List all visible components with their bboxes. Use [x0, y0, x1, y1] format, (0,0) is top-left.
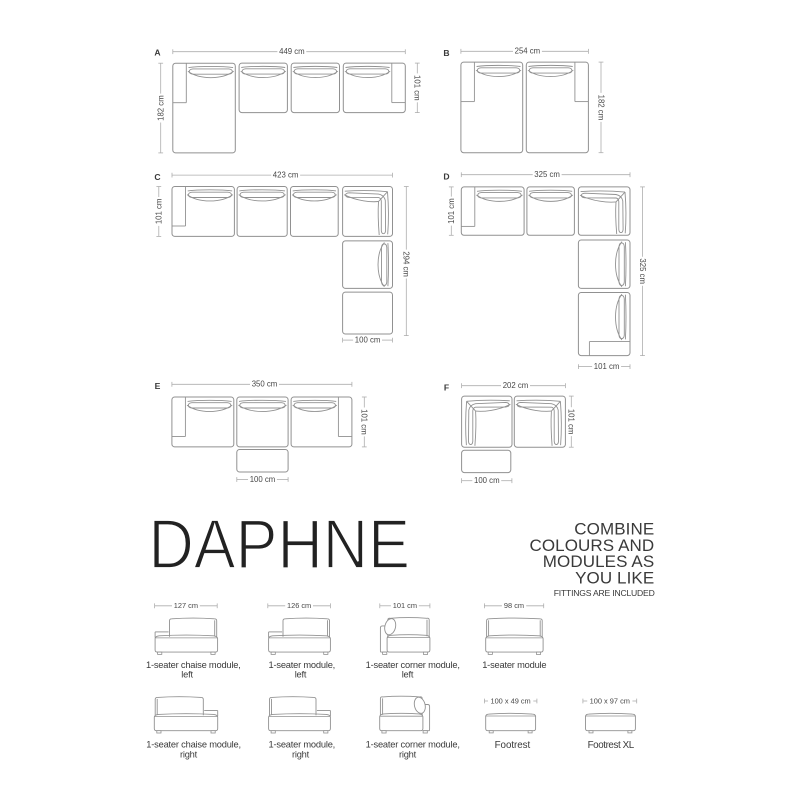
svg-text:101 cm: 101 cm — [393, 601, 417, 610]
svg-text:B: B — [443, 48, 449, 58]
svg-text:right: right — [292, 749, 310, 759]
svg-text:100 cm: 100 cm — [474, 476, 500, 485]
svg-text:1-seater corner module,: 1-seater corner module, — [366, 660, 460, 670]
svg-text:1-seater chaise module,: 1-seater chaise module, — [146, 660, 241, 670]
svg-text:100 cm: 100 cm — [250, 475, 276, 484]
svg-text:C: C — [154, 172, 160, 182]
svg-text:FITTINGS ARE INCLUDED: FITTINGS ARE INCLUDED — [554, 588, 655, 598]
svg-text:YOU LIKE: YOU LIKE — [575, 569, 654, 588]
svg-text:100 x 97 cm: 100 x 97 cm — [590, 696, 630, 705]
svg-text:100 x 49 cm: 100 x 49 cm — [490, 696, 530, 705]
svg-text:Footrest XL: Footrest XL — [588, 740, 635, 751]
svg-text:202 cm: 202 cm — [503, 381, 529, 390]
svg-text:101 cm: 101 cm — [594, 362, 620, 371]
svg-text:left: left — [181, 669, 193, 679]
svg-text:1-seater corner module,: 1-seater corner module, — [366, 740, 460, 750]
svg-text:101 cm: 101 cm — [154, 199, 163, 225]
svg-text:98 cm: 98 cm — [504, 601, 524, 610]
svg-text:182 cm: 182 cm — [596, 95, 605, 121]
svg-text:294 cm: 294 cm — [402, 251, 411, 277]
svg-text:101 cm: 101 cm — [567, 409, 576, 435]
svg-text:100 cm: 100 cm — [355, 336, 381, 345]
svg-text:101 cm: 101 cm — [360, 409, 369, 435]
svg-text:423 cm: 423 cm — [273, 171, 299, 180]
svg-text:right: right — [180, 749, 198, 759]
svg-text:350 cm: 350 cm — [252, 380, 278, 389]
svg-text:1-seater module: 1-seater module — [482, 660, 546, 670]
svg-text:DAPHNE: DAPHNE — [149, 505, 410, 583]
svg-text:449 cm: 449 cm — [279, 47, 305, 56]
svg-text:325 cm: 325 cm — [534, 170, 560, 179]
svg-text:325 cm: 325 cm — [638, 258, 647, 284]
svg-text:E: E — [155, 381, 161, 391]
svg-text:254 cm: 254 cm — [515, 47, 541, 56]
svg-text:left: left — [295, 669, 307, 679]
svg-text:1-seater module,: 1-seater module, — [269, 660, 336, 670]
svg-text:1-seater module,: 1-seater module, — [269, 740, 336, 750]
svg-text:right: right — [399, 749, 417, 759]
svg-text:1-seater chaise module,: 1-seater chaise module, — [146, 740, 241, 750]
svg-text:Footrest: Footrest — [495, 740, 531, 751]
svg-text:left: left — [402, 669, 414, 679]
svg-text:127 cm: 127 cm — [174, 601, 198, 610]
svg-text:F: F — [444, 382, 449, 392]
svg-text:101 cm: 101 cm — [413, 75, 422, 101]
svg-text:A: A — [154, 48, 160, 58]
svg-text:182 cm: 182 cm — [156, 95, 165, 121]
svg-text:101 cm: 101 cm — [447, 198, 456, 224]
svg-text:D: D — [443, 171, 449, 181]
svg-text:126 cm: 126 cm — [287, 601, 311, 610]
